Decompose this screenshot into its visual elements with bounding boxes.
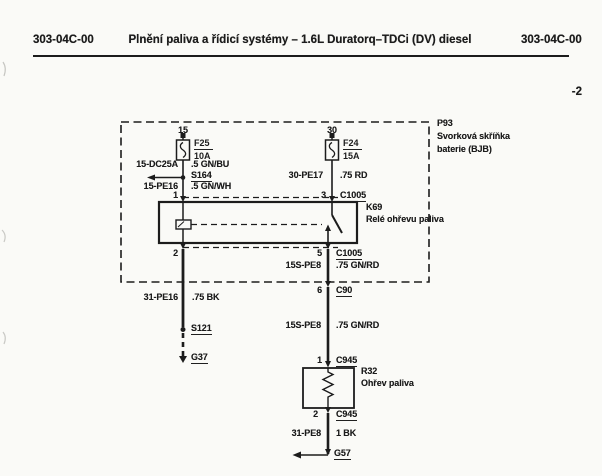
fuse-f25-label: F25 10A: [194, 138, 213, 161]
relay-id: K69: [366, 202, 382, 212]
connector-c945-top-label: C945: [336, 355, 357, 367]
circuit-30-pe17: 30-PE17: [277, 170, 323, 180]
s164-arrow: [147, 175, 155, 181]
fuse-f25-terminal: 15: [171, 125, 195, 135]
wiring-svg: [0, 0, 602, 476]
fuse-f24-element: [329, 143, 334, 158]
fuse-f25-element: [180, 143, 185, 158]
wirespec-75-gnrd-upper: .75 GN/RD: [336, 260, 379, 270]
ground-g37-label: G37: [191, 352, 208, 364]
relay-switch-contact-arrow: [325, 225, 331, 232]
bjb-name-line2: baterie (BJB): [437, 144, 492, 154]
connector-c945-top-pin: 1: [312, 355, 322, 365]
bjb-name-line1: Svorková skříňka: [437, 131, 510, 141]
resistor-symbol: [323, 368, 333, 408]
splice-s121-label: S121: [191, 323, 212, 335]
fuse-f24-id: F24: [343, 138, 362, 150]
c90-pin6-arrow: [325, 281, 331, 287]
c945-pin1-arrow: [325, 361, 331, 368]
fuse-f24-label: F24 15A: [343, 138, 362, 161]
wirespec-5-gnwh: .5 GN/WH: [191, 181, 231, 191]
wirespec-75-gnrd-lower: .75 GN/RD: [336, 320, 379, 330]
s121-splice-dot: [181, 327, 186, 332]
connector-c90-pin: 6: [312, 285, 322, 295]
circuit-31-pe8: 31-PE8: [281, 428, 321, 438]
relay-name: Relé ohřevu paliva: [366, 214, 444, 224]
splice-s164-label: S164: [191, 170, 212, 182]
connector-c1005-bottom-label: C1005: [336, 248, 362, 260]
circuit-15-dc25a: 15-DC25A: [128, 159, 178, 169]
circuit-15s-pe8-lower: 15S-PE8: [277, 320, 321, 330]
relay-pin-1: 1: [168, 190, 178, 200]
scan-smudge: [3, 332, 5, 344]
relay-pin-5: 5: [312, 248, 322, 258]
g37-ground-symbol: [179, 356, 187, 363]
c945-pin2-arrow: [325, 407, 331, 413]
wirespec-5-gnbu: .5 GN/BU: [191, 159, 229, 169]
connector-c945-bottom-label: C945: [336, 409, 357, 421]
connector-c90-label: C90: [336, 285, 352, 297]
fuse-f24-rating: 15A: [343, 150, 362, 161]
wirespec-1-bk: 1 BK: [336, 428, 356, 438]
wirespec-75-bk: .75 BK: [192, 292, 219, 302]
fuse-f25-id: F25: [194, 138, 213, 150]
g57-ground-symbol: [293, 452, 302, 459]
relay-switch-blade: [332, 215, 342, 233]
scanned-wiring-diagram-page: 303-04C-00 Plnění paliva a řídicí systém…: [0, 0, 602, 476]
circuit-15s-pe8-upper: 15S-PE8: [277, 260, 321, 270]
connector-c1005-top-label: C1005: [340, 190, 366, 202]
circuit-31-pe16: 31-PE16: [128, 292, 178, 302]
relay-coil-mark: [178, 222, 184, 228]
bjb-id: P93: [437, 118, 453, 128]
wirespec-75-rd: .75 RD: [340, 170, 367, 180]
ground-g57-label: G57: [334, 448, 351, 460]
fuse-f24-terminal: 30: [320, 125, 344, 135]
scan-smudge: [3, 62, 5, 76]
relay-pin-2: 2: [168, 248, 178, 258]
relay-pin-3: 3: [316, 190, 326, 200]
connector-c945-bottom-pin: 2: [308, 409, 318, 419]
heater-id: R32: [361, 366, 377, 376]
heater-name: Ohřev paliva: [361, 378, 414, 388]
